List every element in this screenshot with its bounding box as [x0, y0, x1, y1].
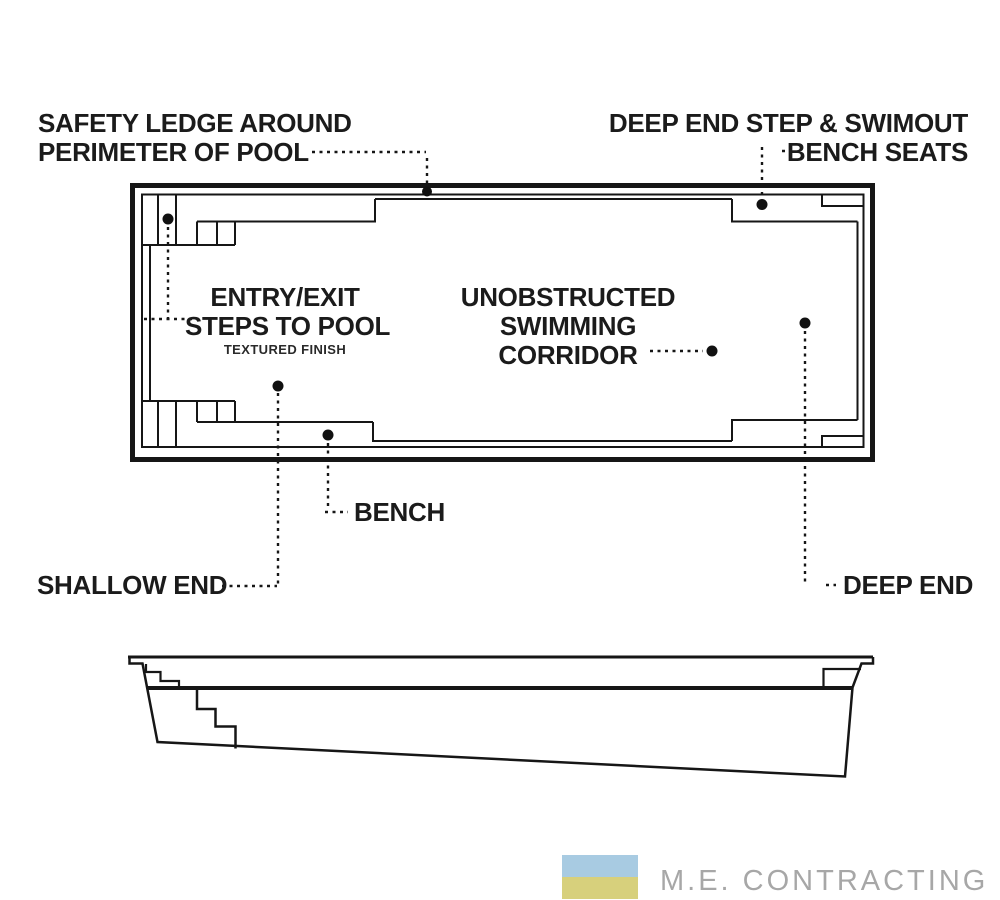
- pool-section-view: [128, 657, 873, 777]
- callout-safety-ledge: SAFETY LEDGE AROUND PERIMETER OF POOL: [38, 109, 352, 167]
- dot-swimming-corridor: [707, 346, 718, 357]
- dot-safety-ledge: [422, 187, 432, 197]
- callout-deep-end-swimout: DEEP END STEP & SWIMOUT BENCH SEATS: [600, 109, 968, 167]
- callout-shallow-end: SHALLOW END: [37, 571, 227, 600]
- logo-yellow-block: [562, 877, 638, 899]
- dot-bench: [323, 430, 334, 441]
- callout-textured-finish-note: TEXTURED FINISH: [185, 342, 385, 357]
- logo-blue-block: [562, 855, 638, 877]
- callout-deep-end-swimout-line2: BENCH SEATS: [600, 138, 968, 167]
- callout-entry-exit-line2: STEPS TO POOL: [185, 312, 385, 341]
- pool-diagram-canvas: SAFETY LEDGE AROUND PERIMETER OF POOL DE…: [0, 0, 1000, 900]
- callout-safety-ledge-line2: PERIMETER OF POOL: [38, 138, 352, 167]
- callout-bench: BENCH: [354, 498, 445, 527]
- dot-deep-end: [800, 318, 811, 329]
- leader-bench: [325, 443, 348, 512]
- callout-swimming-corridor: UNOBSTRUCTED SWIMMING CORRIDOR: [458, 283, 678, 370]
- callout-deep-end: DEEP END: [843, 571, 973, 600]
- dot-deep-end-swimout: [757, 199, 768, 210]
- callout-corridor-line3: CORRIDOR: [458, 341, 678, 370]
- dot-shallow-end: [273, 381, 284, 392]
- section-upper-steps: [146, 664, 179, 688]
- callout-deep-end-swimout-line1: DEEP END STEP & SWIMOUT: [600, 109, 968, 138]
- section-lower-steps: [197, 690, 236, 749]
- callout-safety-ledge-line1: SAFETY LEDGE AROUND: [38, 109, 352, 138]
- callout-entry-exit-line1: ENTRY/EXIT: [185, 283, 385, 312]
- dot-entry-steps: [163, 214, 174, 225]
- callout-entry-exit-steps: ENTRY/EXIT STEPS TO POOL TEXTURED FINISH: [185, 283, 385, 357]
- callout-corridor-line2: SWIMMING: [458, 312, 678, 341]
- callout-corridor-line1: UNOBSTRUCTED: [458, 283, 678, 312]
- company-name: M.E. CONTRACTING: [660, 864, 988, 898]
- section-shell-outline: [130, 657, 874, 777]
